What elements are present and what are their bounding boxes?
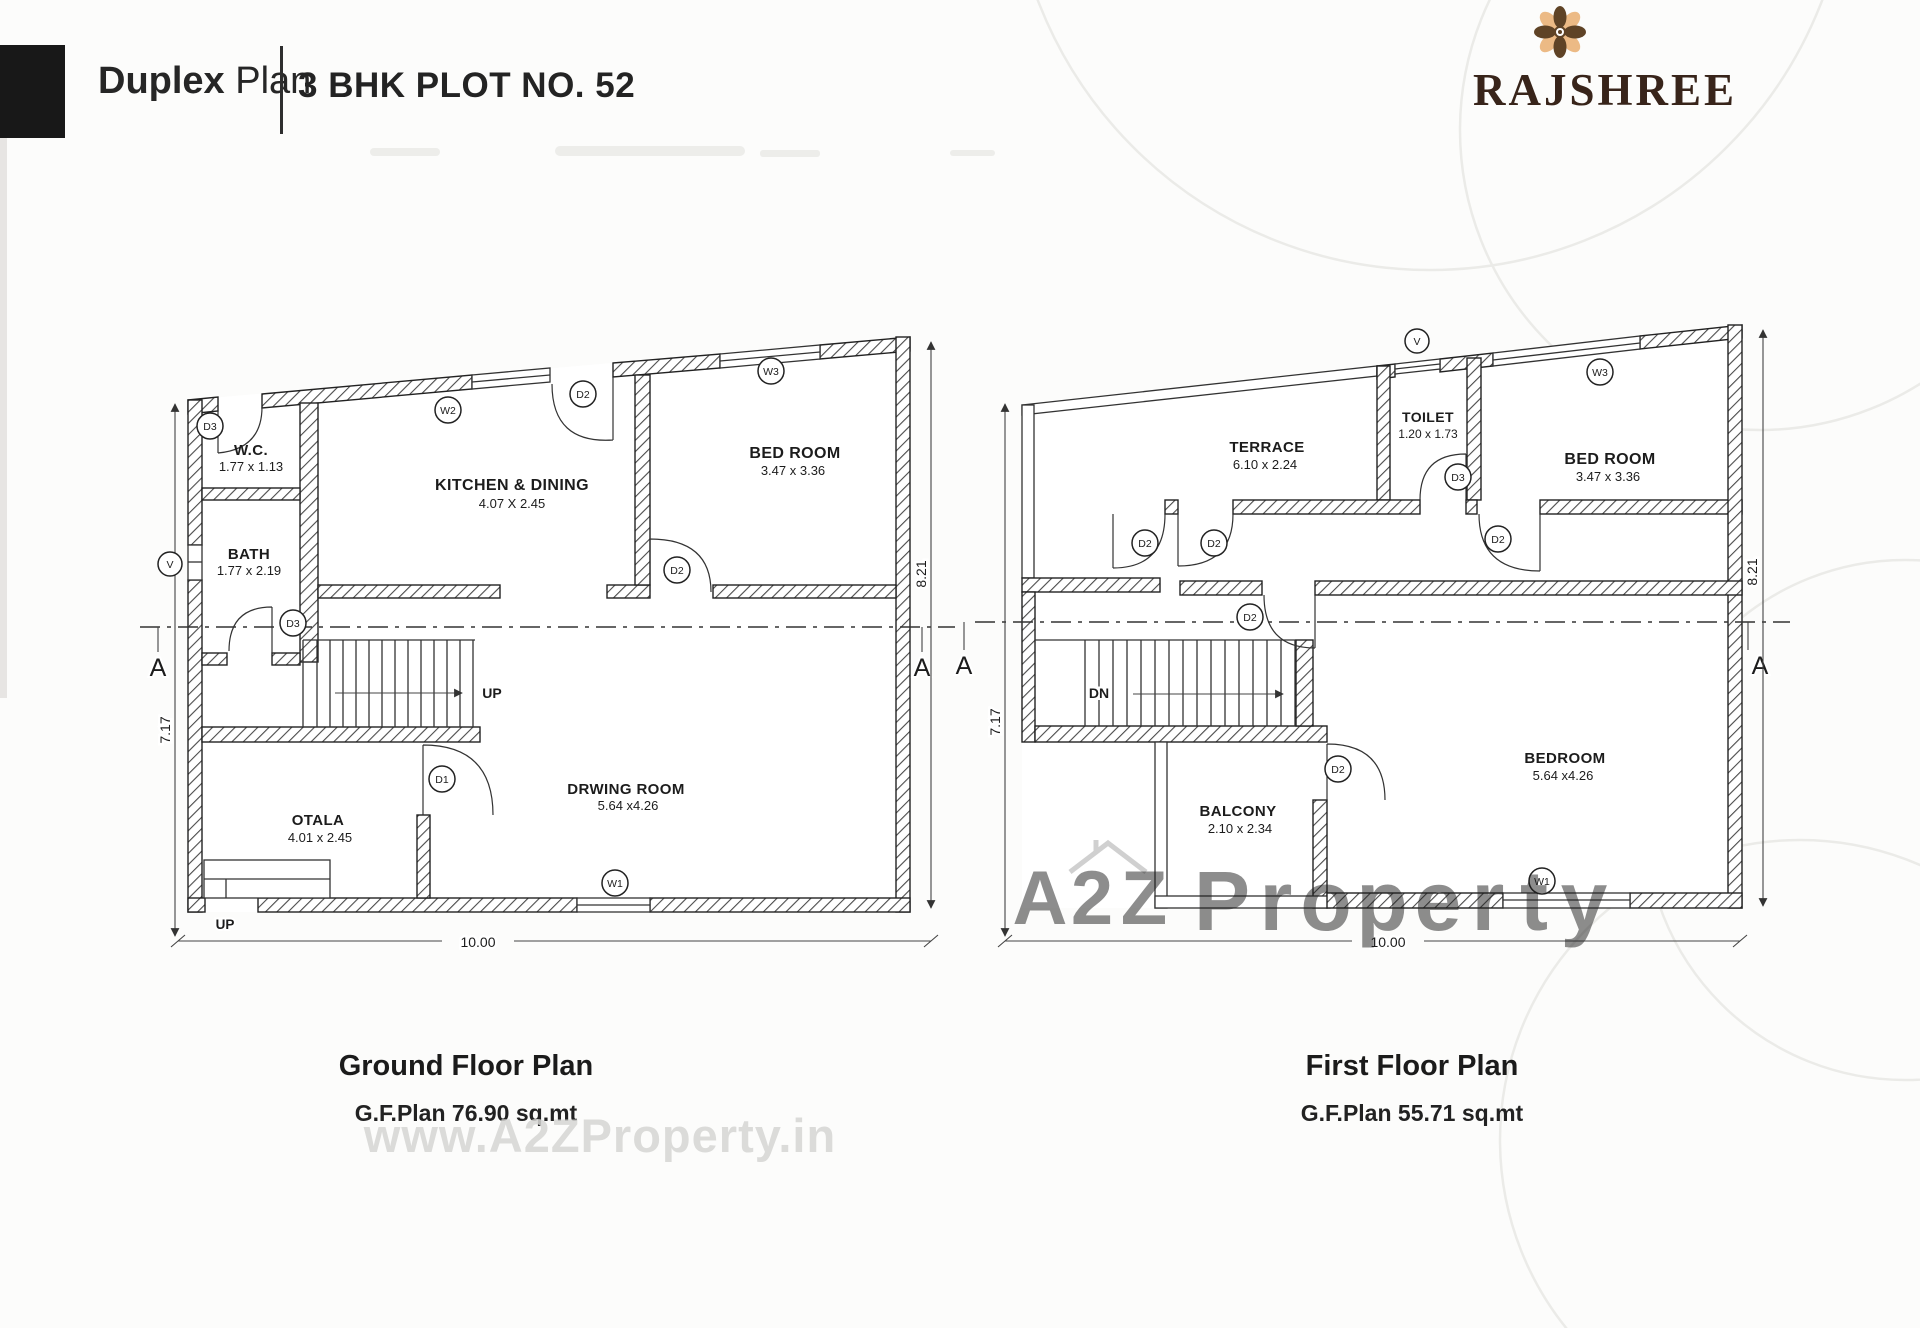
wm-letter-9: t <box>1520 854 1548 948</box>
marker-d2-bedroom-main: D2 <box>1243 612 1257 624</box>
entry-up-label: UP <box>216 917 235 932</box>
marker-w2: W2 <box>440 405 456 417</box>
room-dims-balcony: 2.10 x 2.34 <box>1208 821 1272 836</box>
marker-d3-wc: D3 <box>203 421 217 433</box>
marker-w1-ground: W1 <box>607 878 623 890</box>
room-dims-bedroom: 3.47 x 3.36 <box>761 463 825 478</box>
first-floor-title: First Floor Plan <box>1212 1050 1612 1083</box>
room-label-drawing: DRWING ROOM <box>567 781 684 798</box>
room-label-bedroom-top: BED ROOM <box>1564 451 1655 468</box>
ground-dim-left: 7.17 <box>157 716 173 743</box>
room-label-toilet: TOILET <box>1402 409 1454 425</box>
room-label-bath: BATH <box>228 546 270 563</box>
marker-w3-ground: W3 <box>763 366 779 378</box>
room-dims-bath: 1.77 x 2.19 <box>217 563 281 578</box>
wm-letter-3: P <box>1194 854 1250 948</box>
wm-letter-5: o <box>1300 854 1351 948</box>
section-label-left: A <box>150 654 167 682</box>
marker-d2-bedroom: D2 <box>670 565 684 577</box>
marker-d2-bedroom-top: D2 <box>1491 534 1505 546</box>
ground-floor-plan: UP A A 7.17 8.21 <box>140 337 955 950</box>
room-label-terrace: TERRACE <box>1229 439 1304 456</box>
ground-floor-title: Ground Floor Plan <box>266 1050 666 1083</box>
first-floor-area: G.F.Plan 55.71 sq.mt <box>1212 1100 1612 1127</box>
marker-d3-bath: D3 <box>286 618 300 630</box>
marker-w3-first: W3 <box>1592 367 1608 379</box>
room-dims-kitchen: 4.07 X 2.45 <box>479 496 546 511</box>
wm-letter-2: Z <box>1121 856 1167 941</box>
section-label-right: A <box>914 654 931 682</box>
wm-letter-10: y <box>1561 854 1608 948</box>
entry-steps <box>204 860 330 898</box>
wm-letter-1: 2 <box>1071 856 1113 941</box>
marker-d2-kitchen: D2 <box>576 389 590 401</box>
room-label-bedroom: BED ROOM <box>749 445 840 462</box>
stairs-up-label: UP <box>482 685 501 701</box>
room-dims-bedroom-main: 5.64 x4.26 <box>1533 768 1594 783</box>
url-watermark: www.A2ZProperty.in <box>300 1108 900 1163</box>
room-label-kitchen: KITCHEN & DINING <box>435 477 589 494</box>
room-dims-drawing: 5.64 x4.26 <box>598 798 659 813</box>
room-label-wc: W.C. <box>234 442 268 459</box>
room-dims-wc: 1.77 x 1.13 <box>219 459 283 474</box>
marker-v-first: V <box>1413 336 1420 348</box>
room-dims-bedroom-top: 3.47 x 3.36 <box>1576 469 1640 484</box>
floor-plan-drawing: UP A A 7.17 8.21 <box>0 0 1920 1328</box>
marker-d2-stair: D2 <box>1138 538 1152 550</box>
wm-letter-0: A <box>1013 856 1068 941</box>
stairs-dn-label: DN <box>1089 685 1109 701</box>
room-label-balcony: BALCONY <box>1200 803 1277 820</box>
wm-letter-8: r <box>1472 854 1505 948</box>
marker-d2-terrace: D2 <box>1207 538 1221 550</box>
room-label-otala: OTALA <box>292 812 345 829</box>
marker-d3-toilet: D3 <box>1451 472 1465 484</box>
first-dim-right: 8.21 <box>1744 558 1760 585</box>
section-label-right-ff: A <box>1752 652 1769 680</box>
ground-dim-right: 8.21 <box>913 560 929 587</box>
marker-d2-balcony: D2 <box>1331 764 1345 776</box>
room-dims-otala: 4.01 x 2.45 <box>288 830 352 845</box>
wm-letter-7: e <box>1415 854 1462 948</box>
marker-v-ground: V <box>166 559 173 571</box>
section-label-left-ff: A <box>956 652 973 680</box>
wm-letter-6: p <box>1356 854 1407 948</box>
room-dims-terrace: 6.10 x 2.24 <box>1233 457 1297 472</box>
marker-d1: D1 <box>435 774 449 786</box>
ground-dim-width: 10.00 <box>460 934 495 950</box>
first-dim-left: 7.17 <box>987 708 1003 735</box>
page: Duplex Plan 3 BHK PLOT NO. 52 RAJSHREE <box>0 0 1920 1328</box>
room-label-bedroom-main: BEDROOM <box>1524 750 1605 767</box>
room-dims-toilet: 1.20 x 1.73 <box>1398 427 1458 441</box>
wm-letter-4: r <box>1260 854 1293 948</box>
